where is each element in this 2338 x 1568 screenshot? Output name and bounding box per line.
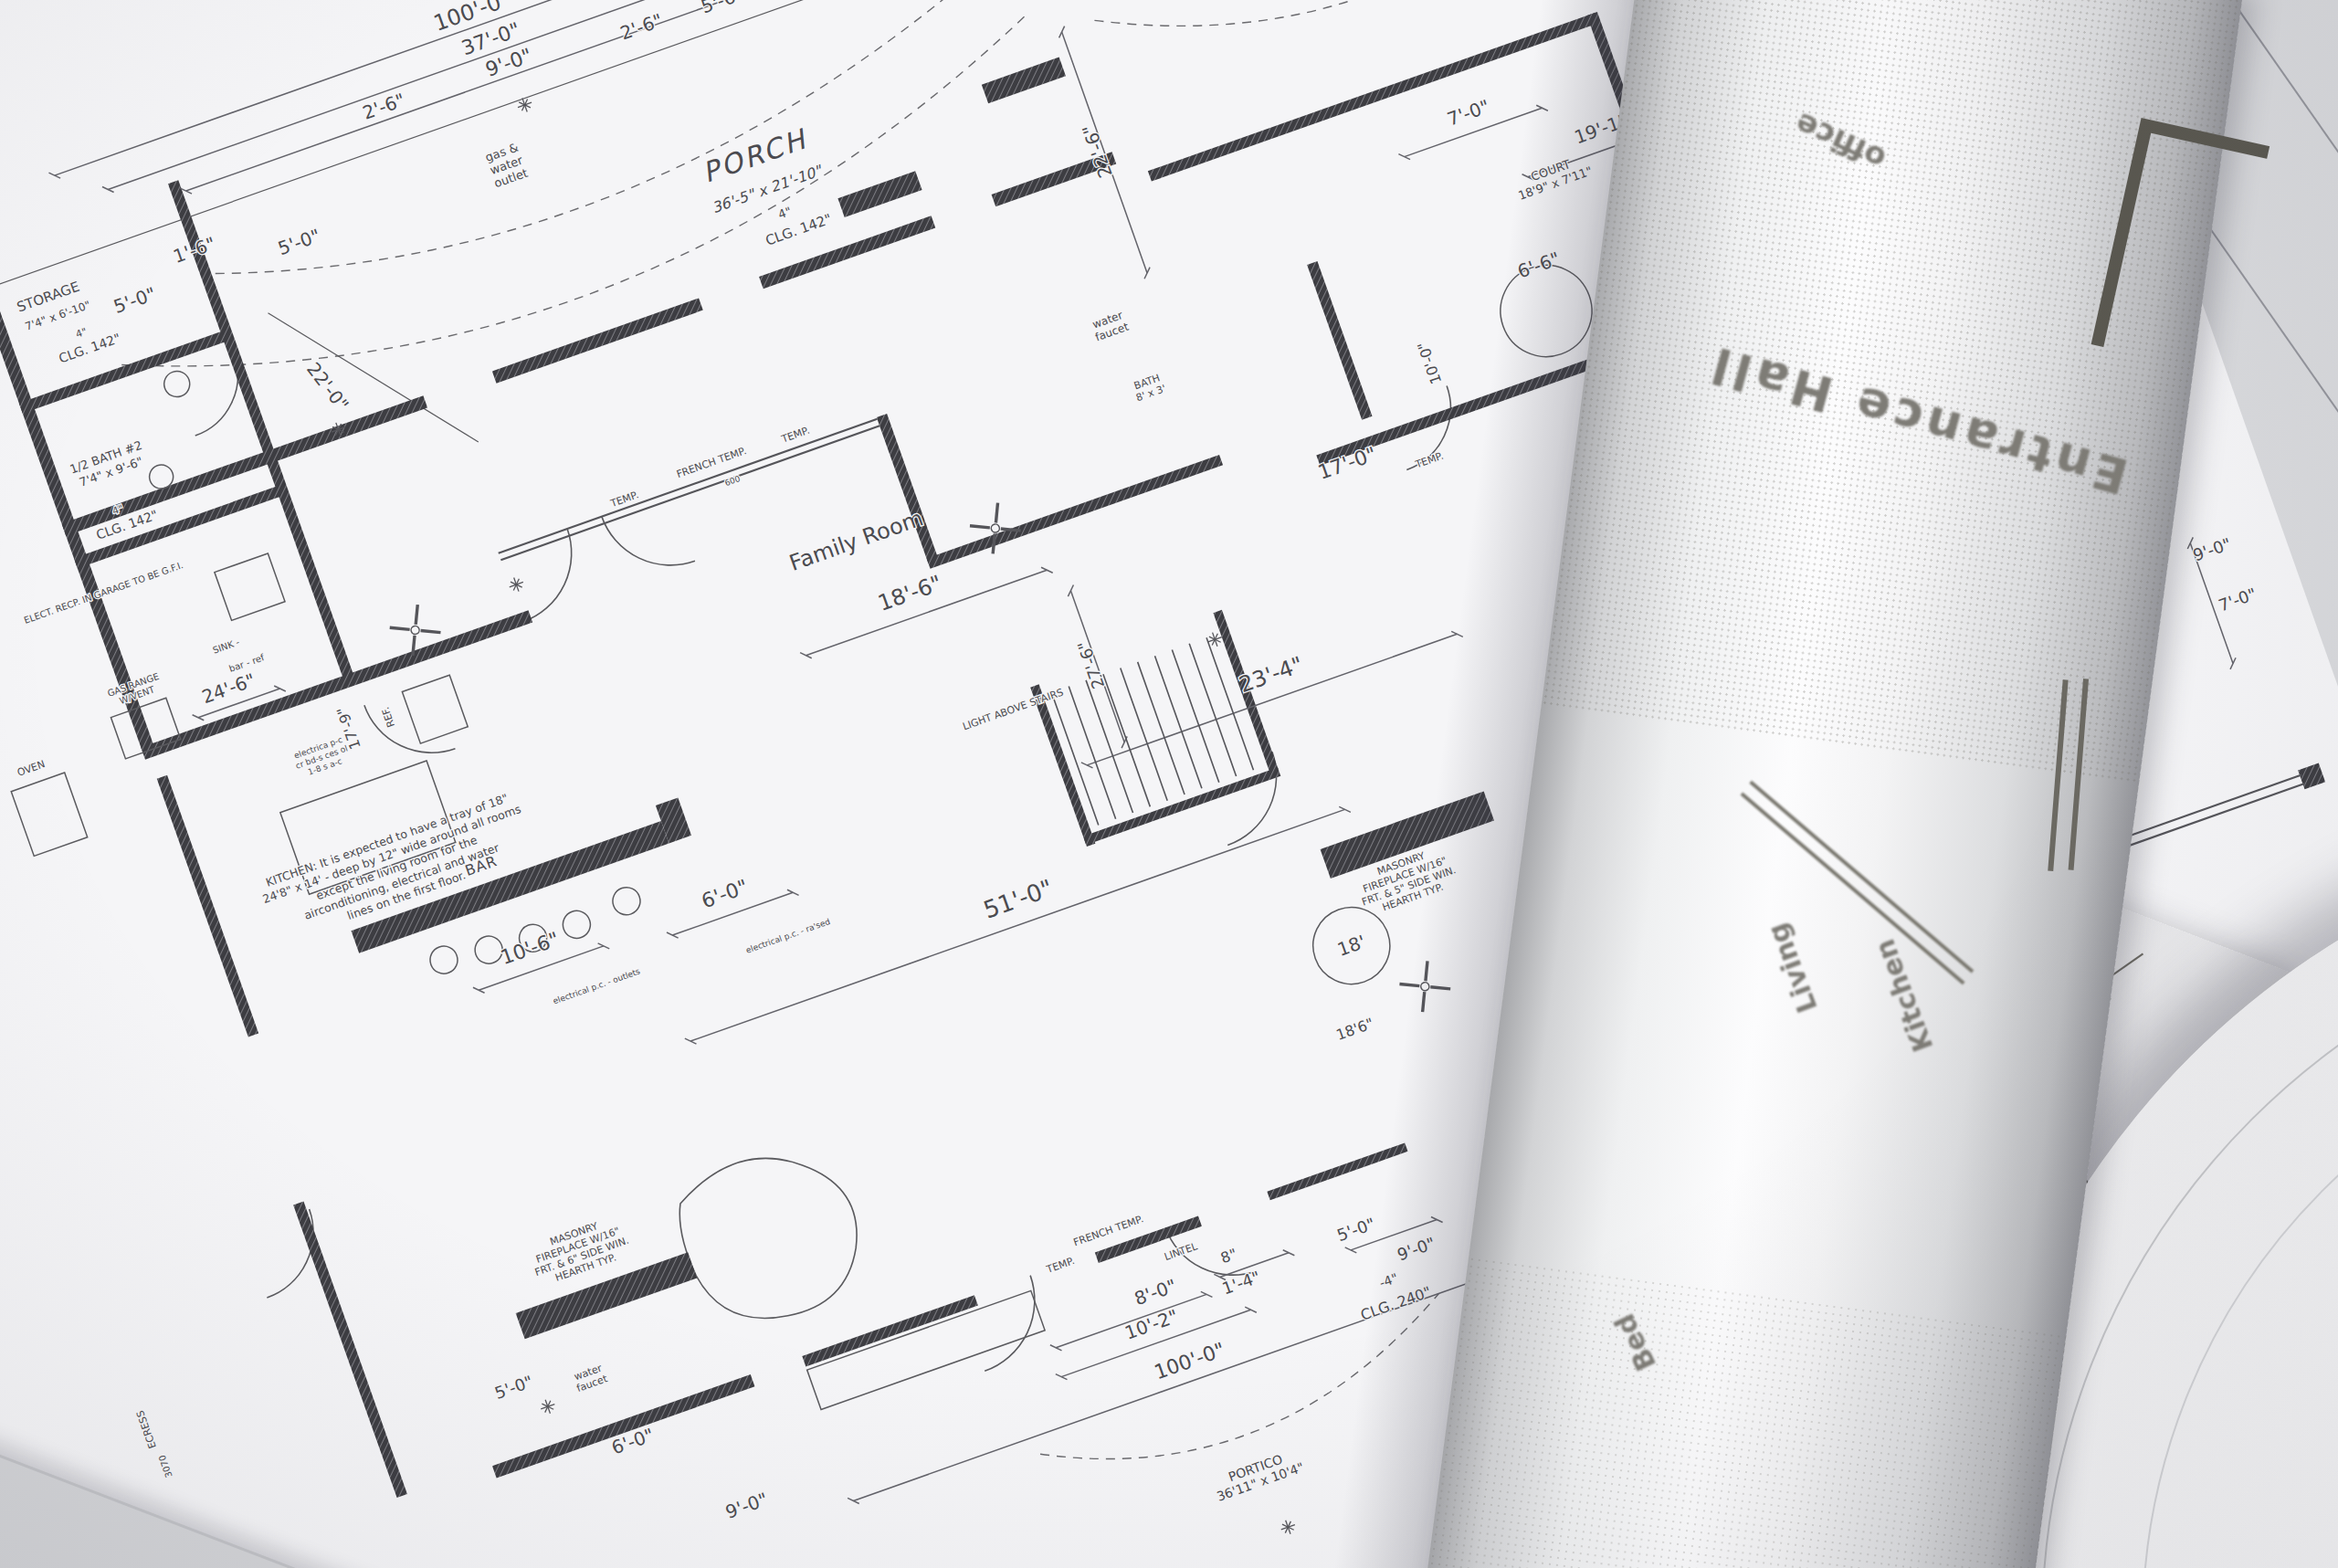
paper-texture	[1419, 1255, 2067, 1568]
blueprint-photo-scene: 100'-0"37'-0"9'-0"2'-6"5'-6"2'-6"5'-0"1'…	[0, 0, 2338, 1568]
roll-printed-text: Living	[1761, 919, 1824, 1017]
